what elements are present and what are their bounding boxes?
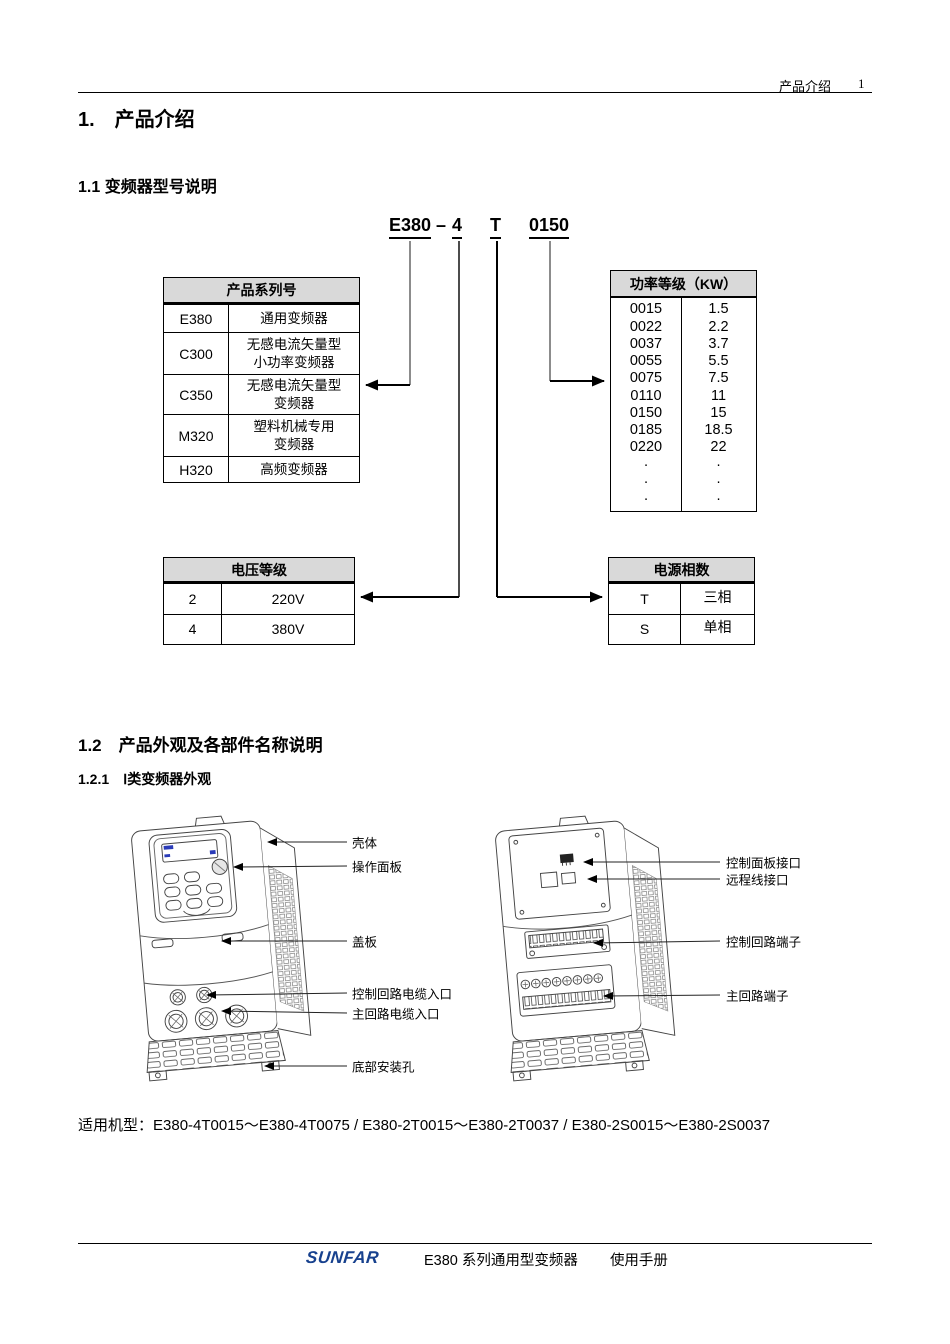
model-code-voltage: 4	[452, 215, 462, 239]
inverter-open-view-drawing	[489, 810, 677, 1081]
callout-main-terminals: 主回路端子	[726, 986, 789, 1005]
footer-series-text: E380 系列通用型变频器	[424, 1253, 578, 1269]
power-kw: 5.5	[682, 353, 755, 370]
series-name-line: 无感电流矢量型	[247, 377, 342, 395]
power-code: 0075	[611, 370, 681, 387]
sunfar-logo: SUNFAR	[305, 1248, 380, 1268]
header-rule	[78, 92, 872, 93]
power-kw-column: 1.5 2.2 3.7 5.5 7.5 11 15 18.5 22 · · ·	[682, 298, 755, 511]
callout-leader-lines	[207, 842, 720, 1066]
series-code: C350	[164, 375, 229, 414]
power-phase-table: 电源相数 T 三相 S 单相	[608, 557, 755, 645]
series-name: 高频变频器	[229, 457, 359, 483]
table-row: S 单相	[609, 614, 754, 645]
table-title: 产品系列号	[164, 278, 359, 304]
applicable-models-text: 适用机型：E380-4T0015～E380-4T0075 / E380-2T00…	[78, 1114, 770, 1135]
table-row: H320 高频变频器	[164, 456, 359, 483]
product-series-table: 产品系列号 E380 通用变频器 C300 无感电流矢量型 小功率变频器 C35…	[163, 277, 360, 483]
power-kw: 15	[682, 405, 755, 422]
power-code: 0037	[611, 336, 681, 353]
inverter-front-view-drawing	[125, 810, 313, 1081]
callout-control-cable-entry: 控制回路电缆入口	[352, 984, 452, 1003]
model-code-phase: T	[490, 215, 501, 239]
callout-main-cable-entry: 主回路电缆入口	[352, 1004, 440, 1023]
table-row: M320 塑料机械专用 变频器	[164, 414, 359, 456]
series-name-line: 小功率变频器	[254, 354, 335, 372]
voltage-code: 2	[164, 584, 222, 614]
power-code: ·	[611, 457, 681, 474]
power-kw: 11	[682, 388, 755, 405]
section-1-1-heading: 1.1 变频器型号说明	[78, 173, 217, 197]
series-code: H320	[164, 457, 229, 483]
callout-housing: 壳体	[352, 833, 377, 852]
table-row: C300 无感电流矢量型 小功率变频器	[164, 332, 359, 374]
table-row: E380 通用变频器	[164, 304, 359, 332]
voltage-value: 380V	[222, 615, 354, 645]
phase-code: S	[609, 615, 681, 645]
power-kw: 1.5	[682, 301, 755, 318]
callout-remote-line-interface: 远程线接口	[726, 870, 789, 889]
voltage-value: 220V	[222, 584, 354, 614]
callout-control-terminals: 控制回路端子	[726, 932, 801, 951]
model-code-connector-lines	[361, 241, 604, 597]
series-name: 塑料机械专用 变频器	[229, 415, 359, 456]
power-code: 0185	[611, 422, 681, 439]
callout-bottom-mounting-hole: 底部安装孔	[352, 1057, 415, 1076]
phase-value: 单相	[681, 615, 754, 645]
power-code: 0055	[611, 353, 681, 370]
series-name-line: 高频变频器	[260, 461, 328, 479]
series-name-line: 通用变频器	[260, 310, 328, 328]
power-rating-table: 功率等级（KW） 0015 0022 0037 0055 0075 0110 0…	[610, 270, 757, 512]
table-row: 2 220V	[164, 583, 354, 614]
power-code: ·	[611, 474, 681, 491]
power-code: 0150	[611, 405, 681, 422]
power-code: 0220	[611, 439, 681, 456]
section-1-2-heading: 1.2 产品外观及各部件名称说明	[78, 731, 323, 756]
callout-cover-plate: 盖板	[352, 932, 377, 951]
power-kw: ·	[682, 491, 755, 508]
series-code: C300	[164, 333, 229, 374]
footer-manual-title: E380 系列通用型变频器 使用手册	[424, 1249, 668, 1270]
series-name: 无感电流矢量型 变频器	[229, 375, 359, 414]
chapter-title: 1. 产品介绍	[78, 103, 195, 132]
table-title: 电压等级	[164, 558, 354, 583]
voltage-class-table: 电压等级 2 220V 4 380V	[163, 557, 355, 645]
power-table-body: 0015 0022 0037 0055 0075 0110 0150 0185 …	[611, 298, 756, 511]
footer-manual-name: 使用手册	[610, 1253, 668, 1269]
power-kw: ·	[682, 474, 755, 491]
table-row: 4 380V	[164, 614, 354, 645]
section-1-2-1-heading: 1.2.1 Ⅰ类变频器外观	[78, 769, 211, 789]
series-name-line: 无感电流矢量型	[247, 336, 342, 354]
series-name-line: 塑料机械专用	[254, 418, 335, 436]
model-code-dash: –	[436, 215, 446, 236]
table-title: 功率等级（KW）	[611, 271, 756, 298]
model-code-power: 0150	[529, 215, 569, 239]
power-kw: ·	[682, 457, 755, 474]
manual-page: 产品介绍 1 1. 产品介绍 1.1 变频器型号说明 E380 – 4 T 01…	[0, 0, 950, 1344]
series-code: M320	[164, 415, 229, 456]
power-kw: 7.5	[682, 370, 755, 387]
phase-value: 三相	[681, 584, 754, 614]
power-code: 0015	[611, 301, 681, 318]
power-kw: 3.7	[682, 336, 755, 353]
power-kw: 18.5	[682, 422, 755, 439]
series-code: E380	[164, 305, 229, 332]
series-name: 通用变频器	[229, 305, 359, 332]
power-code-column: 0015 0022 0037 0055 0075 0110 0150 0185 …	[611, 298, 682, 511]
series-name-line: 变频器	[274, 395, 315, 413]
series-name: 无感电流矢量型 小功率变频器	[229, 333, 359, 374]
voltage-code: 4	[164, 615, 222, 645]
series-name-line: 变频器	[274, 436, 315, 454]
phase-code: T	[609, 584, 681, 614]
table-row: T 三相	[609, 583, 754, 614]
table-row: C350 无感电流矢量型 变频器	[164, 374, 359, 414]
footer-rule	[78, 1243, 872, 1244]
power-kw: 22	[682, 439, 755, 456]
power-code: 0110	[611, 388, 681, 405]
power-code: ·	[611, 491, 681, 508]
model-code-series: E380	[389, 215, 431, 239]
header-page-number: 1	[858, 76, 865, 92]
power-code: 0022	[611, 319, 681, 336]
callout-operation-panel: 操作面板	[352, 857, 402, 876]
table-title: 电源相数	[609, 558, 754, 583]
power-kw: 2.2	[682, 319, 755, 336]
line-artwork-layer	[0, 0, 950, 1344]
